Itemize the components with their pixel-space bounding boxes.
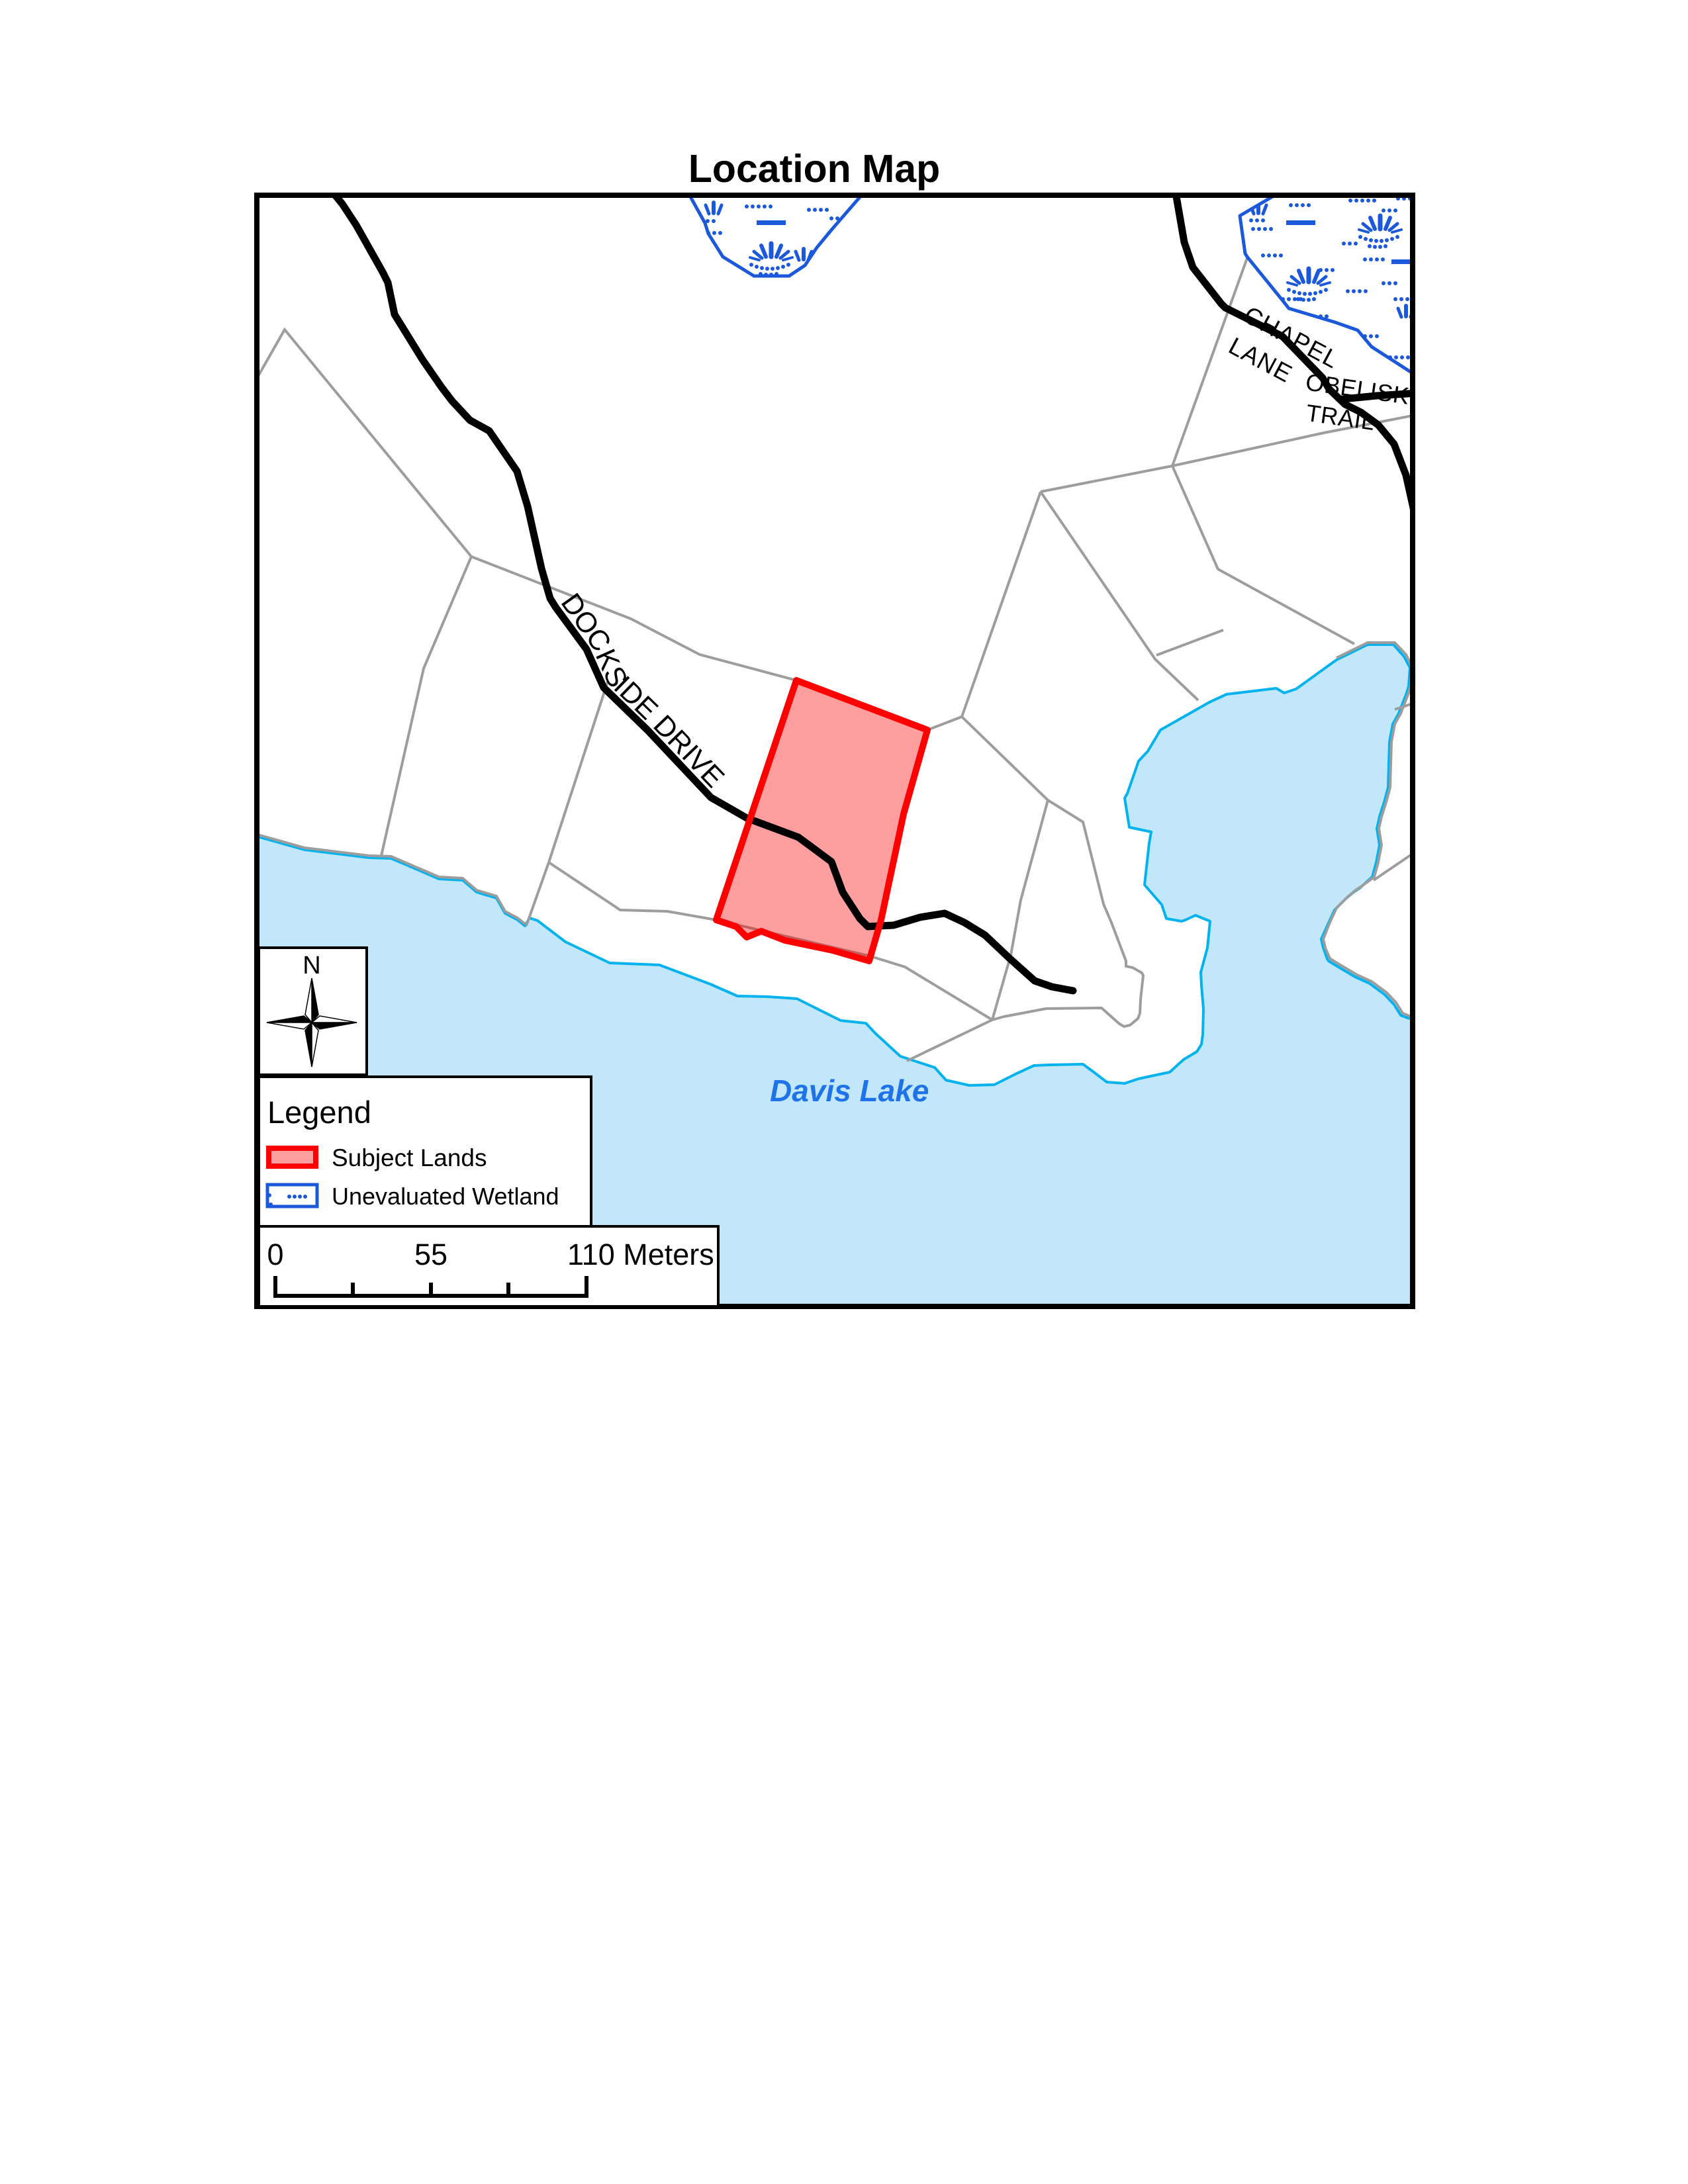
svg-text:Unevaluated Wetland: Unevaluated Wetland — [332, 1183, 559, 1210]
svg-text:Legend: Legend — [267, 1095, 371, 1130]
svg-text:Subject Lands: Subject Lands — [332, 1144, 487, 1171]
svg-text:Location Map: Location Map — [688, 147, 940, 191]
svg-text:110 Meters: 110 Meters — [567, 1238, 714, 1271]
svg-text:55: 55 — [414, 1238, 447, 1271]
svg-text:Davis Lake: Davis Lake — [770, 1073, 929, 1108]
svg-text:N: N — [303, 952, 320, 979]
svg-text:0: 0 — [267, 1238, 283, 1271]
